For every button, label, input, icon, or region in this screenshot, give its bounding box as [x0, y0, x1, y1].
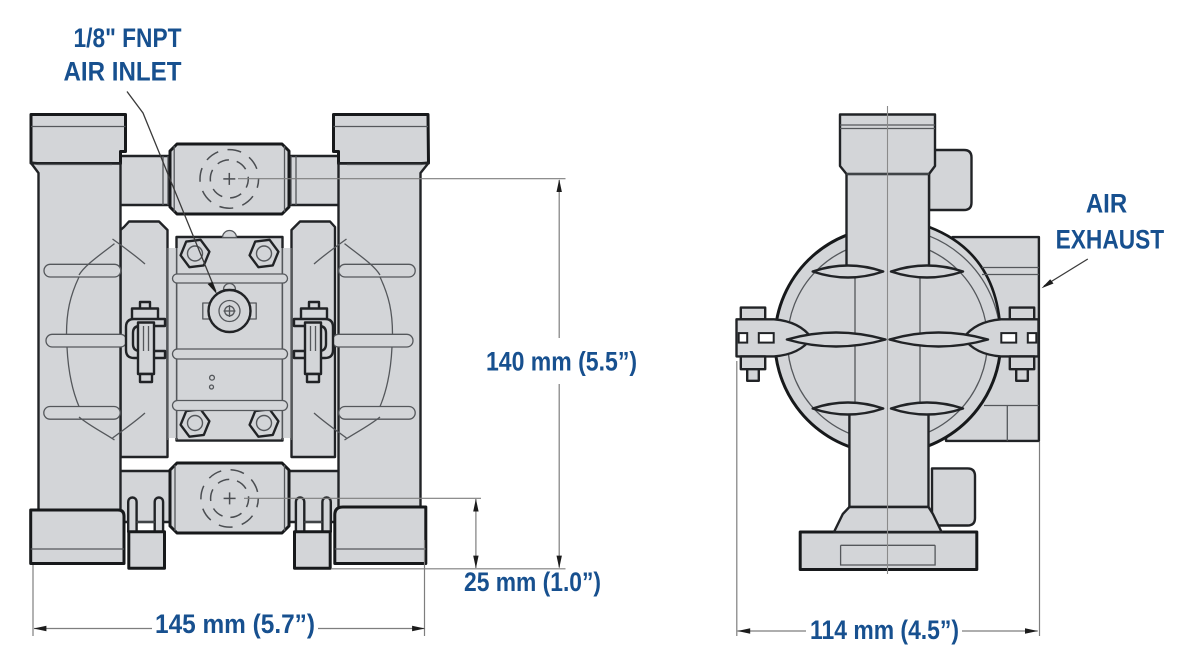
svg-text:1/8" FNPT: 1/8" FNPT	[74, 23, 182, 53]
svg-text:145 mm (5.7”): 145 mm (5.7”)	[155, 609, 315, 639]
svg-text:AIR: AIR	[1086, 188, 1127, 218]
svg-text:EXHAUST: EXHAUST	[1056, 224, 1165, 254]
svg-text:25 mm (1.0”): 25 mm (1.0”)	[464, 567, 601, 597]
svg-text:140 mm (5.5”): 140 mm (5.5”)	[486, 347, 637, 377]
svg-text:114 mm (4.5”): 114 mm (4.5”)	[810, 615, 959, 645]
svg-text:AIR INLET: AIR INLET	[64, 57, 182, 87]
